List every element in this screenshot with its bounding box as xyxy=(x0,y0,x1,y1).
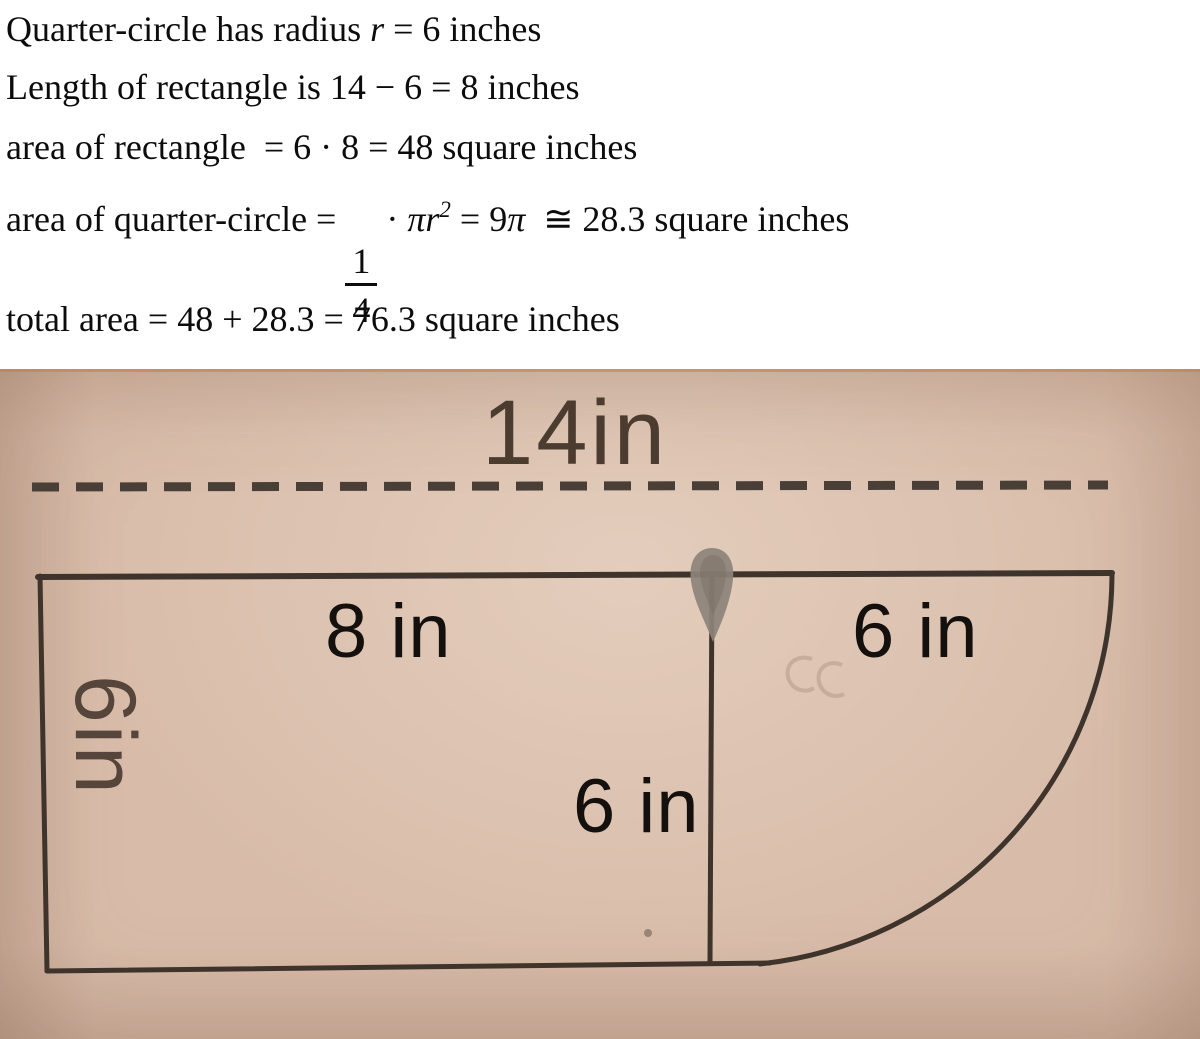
line4-multiply-dot: · xyxy=(377,199,407,239)
solution-line-rect-length: Length of rectangle is 14 − 6 = 8 inches xyxy=(6,66,579,108)
figure-top-edge xyxy=(38,573,1112,577)
line4-pi-symbol: π xyxy=(507,199,525,239)
line1-variable-r: r xyxy=(370,9,384,49)
pi-r-exponent: 2 xyxy=(439,197,451,222)
label-14in: 14in xyxy=(482,382,668,484)
pencil-squiggle xyxy=(788,658,844,696)
line1-prefix: Quarter-circle has radius xyxy=(6,9,370,49)
line4-equals-nine: = 9 xyxy=(451,199,507,239)
rectangle-left-edge xyxy=(40,576,47,971)
line1-suffix: = 6 inches xyxy=(384,9,541,49)
line4-prefix: area of quarter-circle = xyxy=(6,199,345,239)
figure-photo: 14in 6in 8 in 6 in 6 in xyxy=(0,369,1200,1039)
label-6in-left-rotated: 6in xyxy=(57,675,153,796)
composite-figure: 14in 6in 8 in 6 in 6 in xyxy=(0,369,1200,1039)
dashed-width-line xyxy=(32,485,1108,487)
fraction-numerator: 1 xyxy=(345,241,377,286)
figure-bottom-edge xyxy=(47,963,770,971)
pi-r-base: πr xyxy=(407,199,439,239)
pencil-dot xyxy=(644,929,652,937)
solution-line-rect-area: area of rectangle = 6 · 8 = 48 square in… xyxy=(6,126,637,168)
solution-line-radius: Quarter-circle has radius r = 6 inches xyxy=(6,8,541,50)
line4-approx-result: ≅ 28.3 square inches xyxy=(525,199,849,239)
label-6in-right: 6 in xyxy=(852,589,979,674)
solution-text: Quarter-circle has radius r = 6 inches L… xyxy=(0,0,1200,369)
solution-line-total-area: total area = 48 + 28.3 = 76.3 square inc… xyxy=(6,298,620,340)
label-6in-middle: 6 in xyxy=(573,764,700,849)
label-8in: 8 in xyxy=(325,589,452,674)
page: Quarter-circle has radius r = 6 inches L… xyxy=(0,0,1200,1039)
line4-pi-r: πr2 xyxy=(407,199,451,239)
